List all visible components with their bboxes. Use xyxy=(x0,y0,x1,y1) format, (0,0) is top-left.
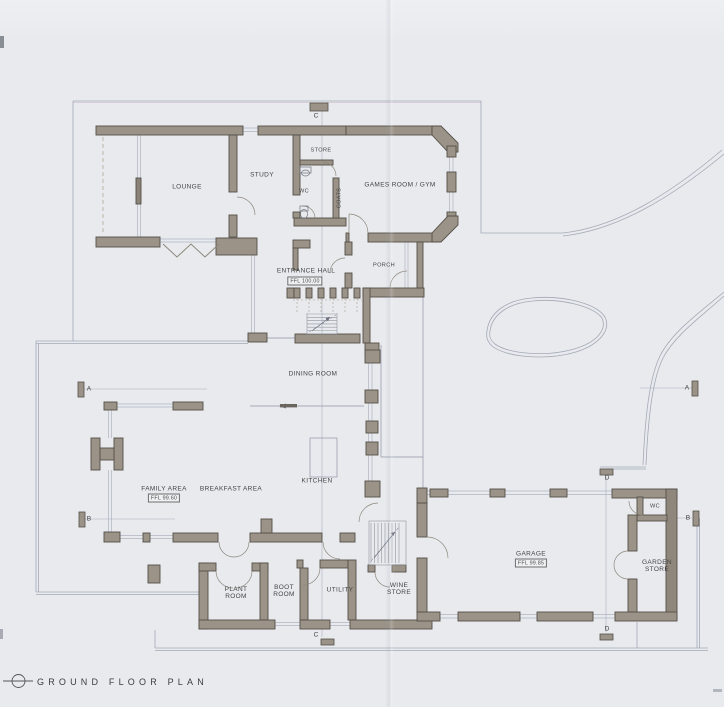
room-label-kitchen: KITCHEN xyxy=(302,478,333,485)
floor-plan-sheet: LOUNGE STUDY STORE WC COATS GAMES ROOM /… xyxy=(0,0,724,707)
pond-outline xyxy=(487,297,607,357)
hall-columns xyxy=(294,288,360,298)
room-label-garden-store: GARDEN STORE xyxy=(636,559,678,573)
section-marker-b-left: B xyxy=(87,516,91,523)
marker-tick-a-right xyxy=(692,381,698,396)
room-label-coats: COATS xyxy=(337,188,344,209)
plan-linework xyxy=(0,0,724,707)
section-marker-a-right: A xyxy=(685,385,689,392)
section-marker-c-bottom: C xyxy=(314,632,319,639)
room-label-boot-room: BOOT ROOM xyxy=(268,584,300,598)
room-label-porch: PORCH xyxy=(373,263,395,270)
folding-door-symbol xyxy=(163,244,219,257)
room-label-wc-garage: WC xyxy=(650,504,660,511)
room-label-study: STUDY xyxy=(250,172,274,179)
marker-tick-b-right xyxy=(693,511,699,526)
door-arcs xyxy=(216,162,643,588)
paper-fold-crease xyxy=(385,0,395,707)
title-datum-icon xyxy=(3,675,33,688)
section-marker-d-top: D xyxy=(605,475,610,482)
step-wall xyxy=(280,404,297,407)
room-label-utility: UTILITY xyxy=(327,587,354,594)
landscape-curves xyxy=(487,292,724,465)
room-label-garage: GARAGE xyxy=(516,551,546,558)
room-label-family-area: FAMILY AREA xyxy=(141,486,187,493)
marker-tick-a-left xyxy=(78,382,84,397)
section-marker-c-top: C xyxy=(314,113,319,120)
walls xyxy=(91,126,677,629)
section-marker-b-right: B xyxy=(686,515,690,522)
room-label-store: STORE xyxy=(311,148,332,155)
room-label-dining-room: DINING ROOM xyxy=(289,371,338,378)
ffl-badge-entrance-hall: FFL 100.00 xyxy=(287,277,322,286)
room-label-entrance-hall: ENTRANCE HALL xyxy=(277,268,335,275)
room-label-wc-north: WC xyxy=(299,189,309,196)
marker-tick-c-top xyxy=(310,103,328,111)
ffl-badge-garage: FFL 99.85 xyxy=(515,559,547,568)
interior-thin-lines xyxy=(250,297,423,488)
room-label-lounge: LOUNGE xyxy=(172,184,202,191)
room-label-breakfast-area: BREAKFAST AREA xyxy=(200,486,262,493)
section-marker-a-left: A xyxy=(87,386,91,393)
room-label-wine-store: WINE STORE xyxy=(383,582,415,596)
marker-tick-b-left xyxy=(79,512,85,527)
ffl-badge-family-area: FFL 99.60 xyxy=(148,494,180,503)
room-label-games-room: GAMES ROOM / GYM xyxy=(364,182,435,189)
section-marker-d-bottom: D xyxy=(605,626,610,633)
kitchen-island xyxy=(310,438,337,477)
marker-tick-c-bottom xyxy=(321,639,334,645)
marker-tick-d-bottom xyxy=(600,634,613,640)
room-label-plant-room: PLANT ROOM xyxy=(218,586,254,600)
plan-title: GROUND FLOOR PLAN xyxy=(37,677,208,687)
